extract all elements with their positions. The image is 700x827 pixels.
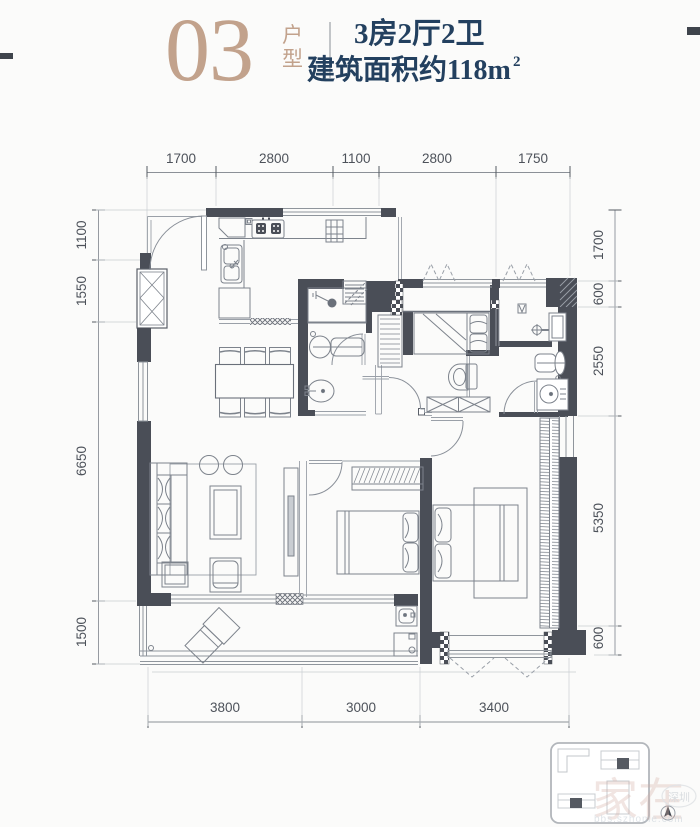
- svg-text:600: 600: [591, 283, 606, 306]
- svg-text:3000: 3000: [346, 700, 376, 715]
- svg-text:户: 户: [282, 23, 303, 47]
- svg-text:1750: 1750: [518, 151, 548, 166]
- svg-text:1700: 1700: [166, 151, 196, 166]
- svg-text:1700: 1700: [591, 230, 606, 260]
- svg-text:3房2厅2卫: 3房2厅2卫: [354, 17, 485, 50]
- svg-text:3400: 3400: [479, 700, 509, 715]
- svg-text:1100: 1100: [74, 220, 89, 249]
- svg-text:03: 03: [165, 1, 253, 100]
- svg-text:6650: 6650: [74, 446, 89, 476]
- svg-text:1100: 1100: [341, 151, 370, 166]
- svg-text:型: 型: [282, 47, 303, 71]
- svg-text:bbs.szhome.com: bbs.szhome.com: [594, 814, 684, 825]
- svg-text:5350: 5350: [591, 503, 606, 533]
- svg-text:2550: 2550: [591, 346, 606, 376]
- svg-text:3800: 3800: [210, 700, 240, 715]
- svg-text:1550: 1550: [74, 276, 89, 306]
- svg-text:2800: 2800: [422, 151, 452, 166]
- svg-text:2800: 2800: [259, 151, 289, 166]
- svg-text:深圳: 深圳: [668, 791, 690, 804]
- svg-text:建筑面积约118m: 建筑面积约118m: [307, 54, 511, 86]
- svg-text:1500: 1500: [74, 617, 89, 647]
- svg-text:2: 2: [513, 54, 521, 70]
- svg-text:600: 600: [591, 627, 606, 650]
